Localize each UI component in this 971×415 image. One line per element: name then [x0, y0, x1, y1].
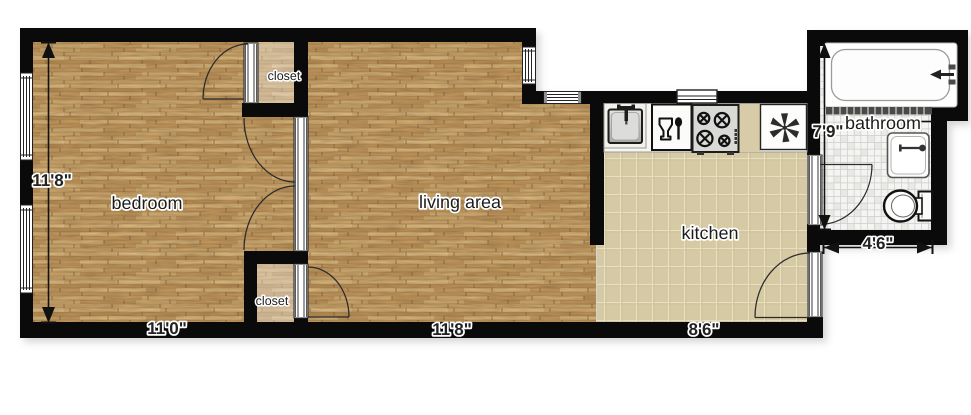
- svg-text:4'6": 4'6": [862, 234, 893, 253]
- svg-text:bedroom: bedroom: [111, 193, 182, 213]
- svg-text:7'9": 7'9": [812, 122, 843, 141]
- svg-text:8'6": 8'6": [688, 320, 719, 339]
- svg-text:living area: living area: [419, 192, 502, 212]
- svg-text:bathroom: bathroom: [845, 113, 921, 133]
- svg-text:11'8": 11'8": [432, 320, 472, 339]
- svg-text:closet: closet: [256, 294, 289, 308]
- svg-text:11'8": 11'8": [32, 171, 72, 190]
- svg-text:closet: closet: [268, 69, 301, 83]
- svg-text:11'0": 11'0": [147, 319, 187, 338]
- svg-text:kitchen: kitchen: [681, 223, 738, 243]
